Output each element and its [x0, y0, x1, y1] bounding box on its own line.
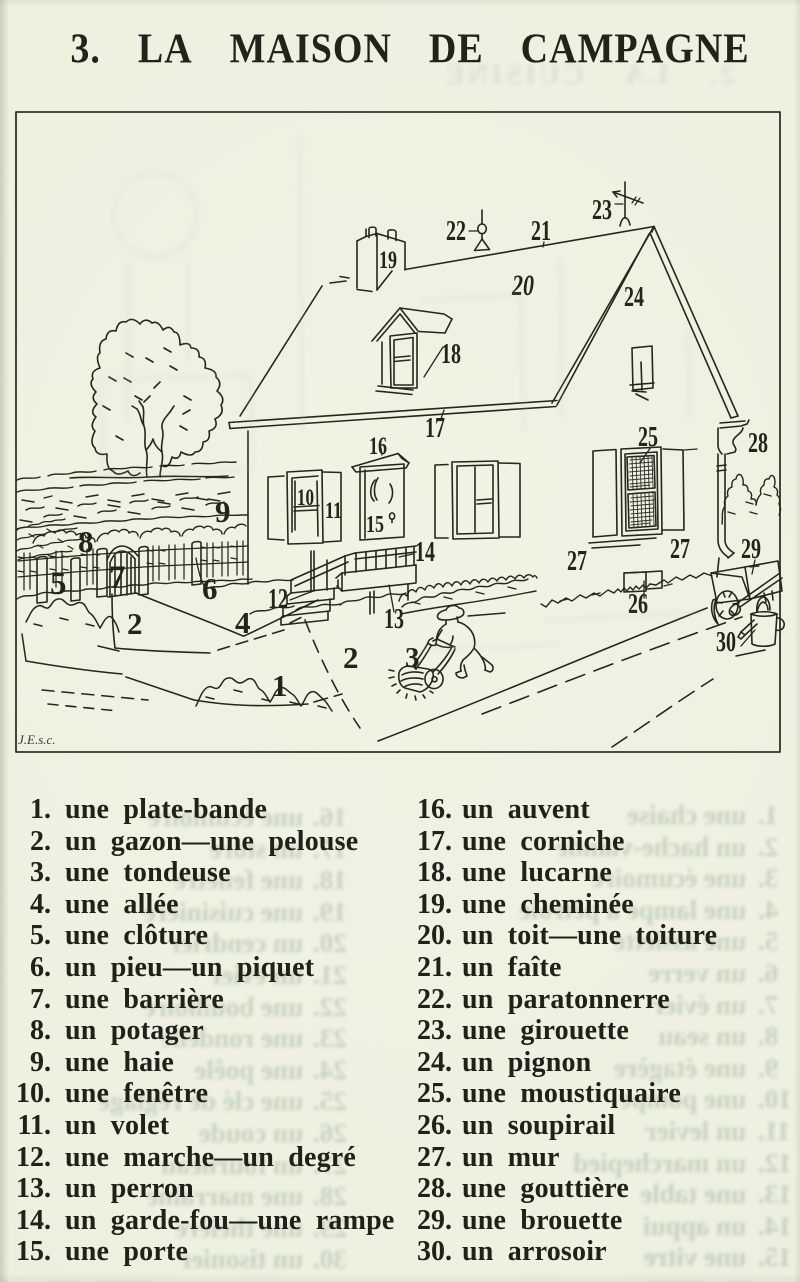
svg-text:25: 25 [638, 422, 658, 453]
svg-text:J.E.s.c.: J.E.s.c. [18, 732, 56, 747]
svg-text:15: 15 [366, 512, 384, 538]
svg-text:21: 21 [531, 216, 551, 247]
svg-text:27: 27 [670, 534, 690, 565]
svg-text:1: 1 [272, 668, 288, 703]
svg-text:22: 22 [446, 216, 466, 247]
svg-text:11: 11 [325, 498, 342, 523]
svg-text:27: 27 [567, 546, 587, 577]
svg-text:18: 18 [441, 339, 461, 370]
svg-text:28: 28 [748, 428, 768, 459]
svg-text:12: 12 [268, 584, 288, 615]
svg-text:29: 29 [741, 534, 761, 565]
svg-text:3: 3 [405, 642, 420, 674]
svg-text:19: 19 [379, 247, 397, 274]
svg-text:16: 16 [369, 433, 387, 460]
svg-text:6: 6 [202, 571, 218, 606]
svg-text:2: 2 [343, 640, 359, 675]
svg-text:10: 10 [297, 485, 314, 510]
svg-text:4: 4 [235, 605, 251, 640]
svg-text:7: 7 [109, 560, 126, 596]
svg-text:9: 9 [215, 494, 231, 529]
svg-text:2: 2 [127, 606, 143, 641]
svg-text:8: 8 [78, 524, 94, 559]
svg-text:24: 24 [624, 282, 644, 313]
svg-text:5: 5 [50, 566, 67, 602]
svg-text:23: 23 [592, 195, 612, 226]
svg-text:14: 14 [415, 537, 435, 568]
svg-text:30: 30 [716, 627, 736, 658]
